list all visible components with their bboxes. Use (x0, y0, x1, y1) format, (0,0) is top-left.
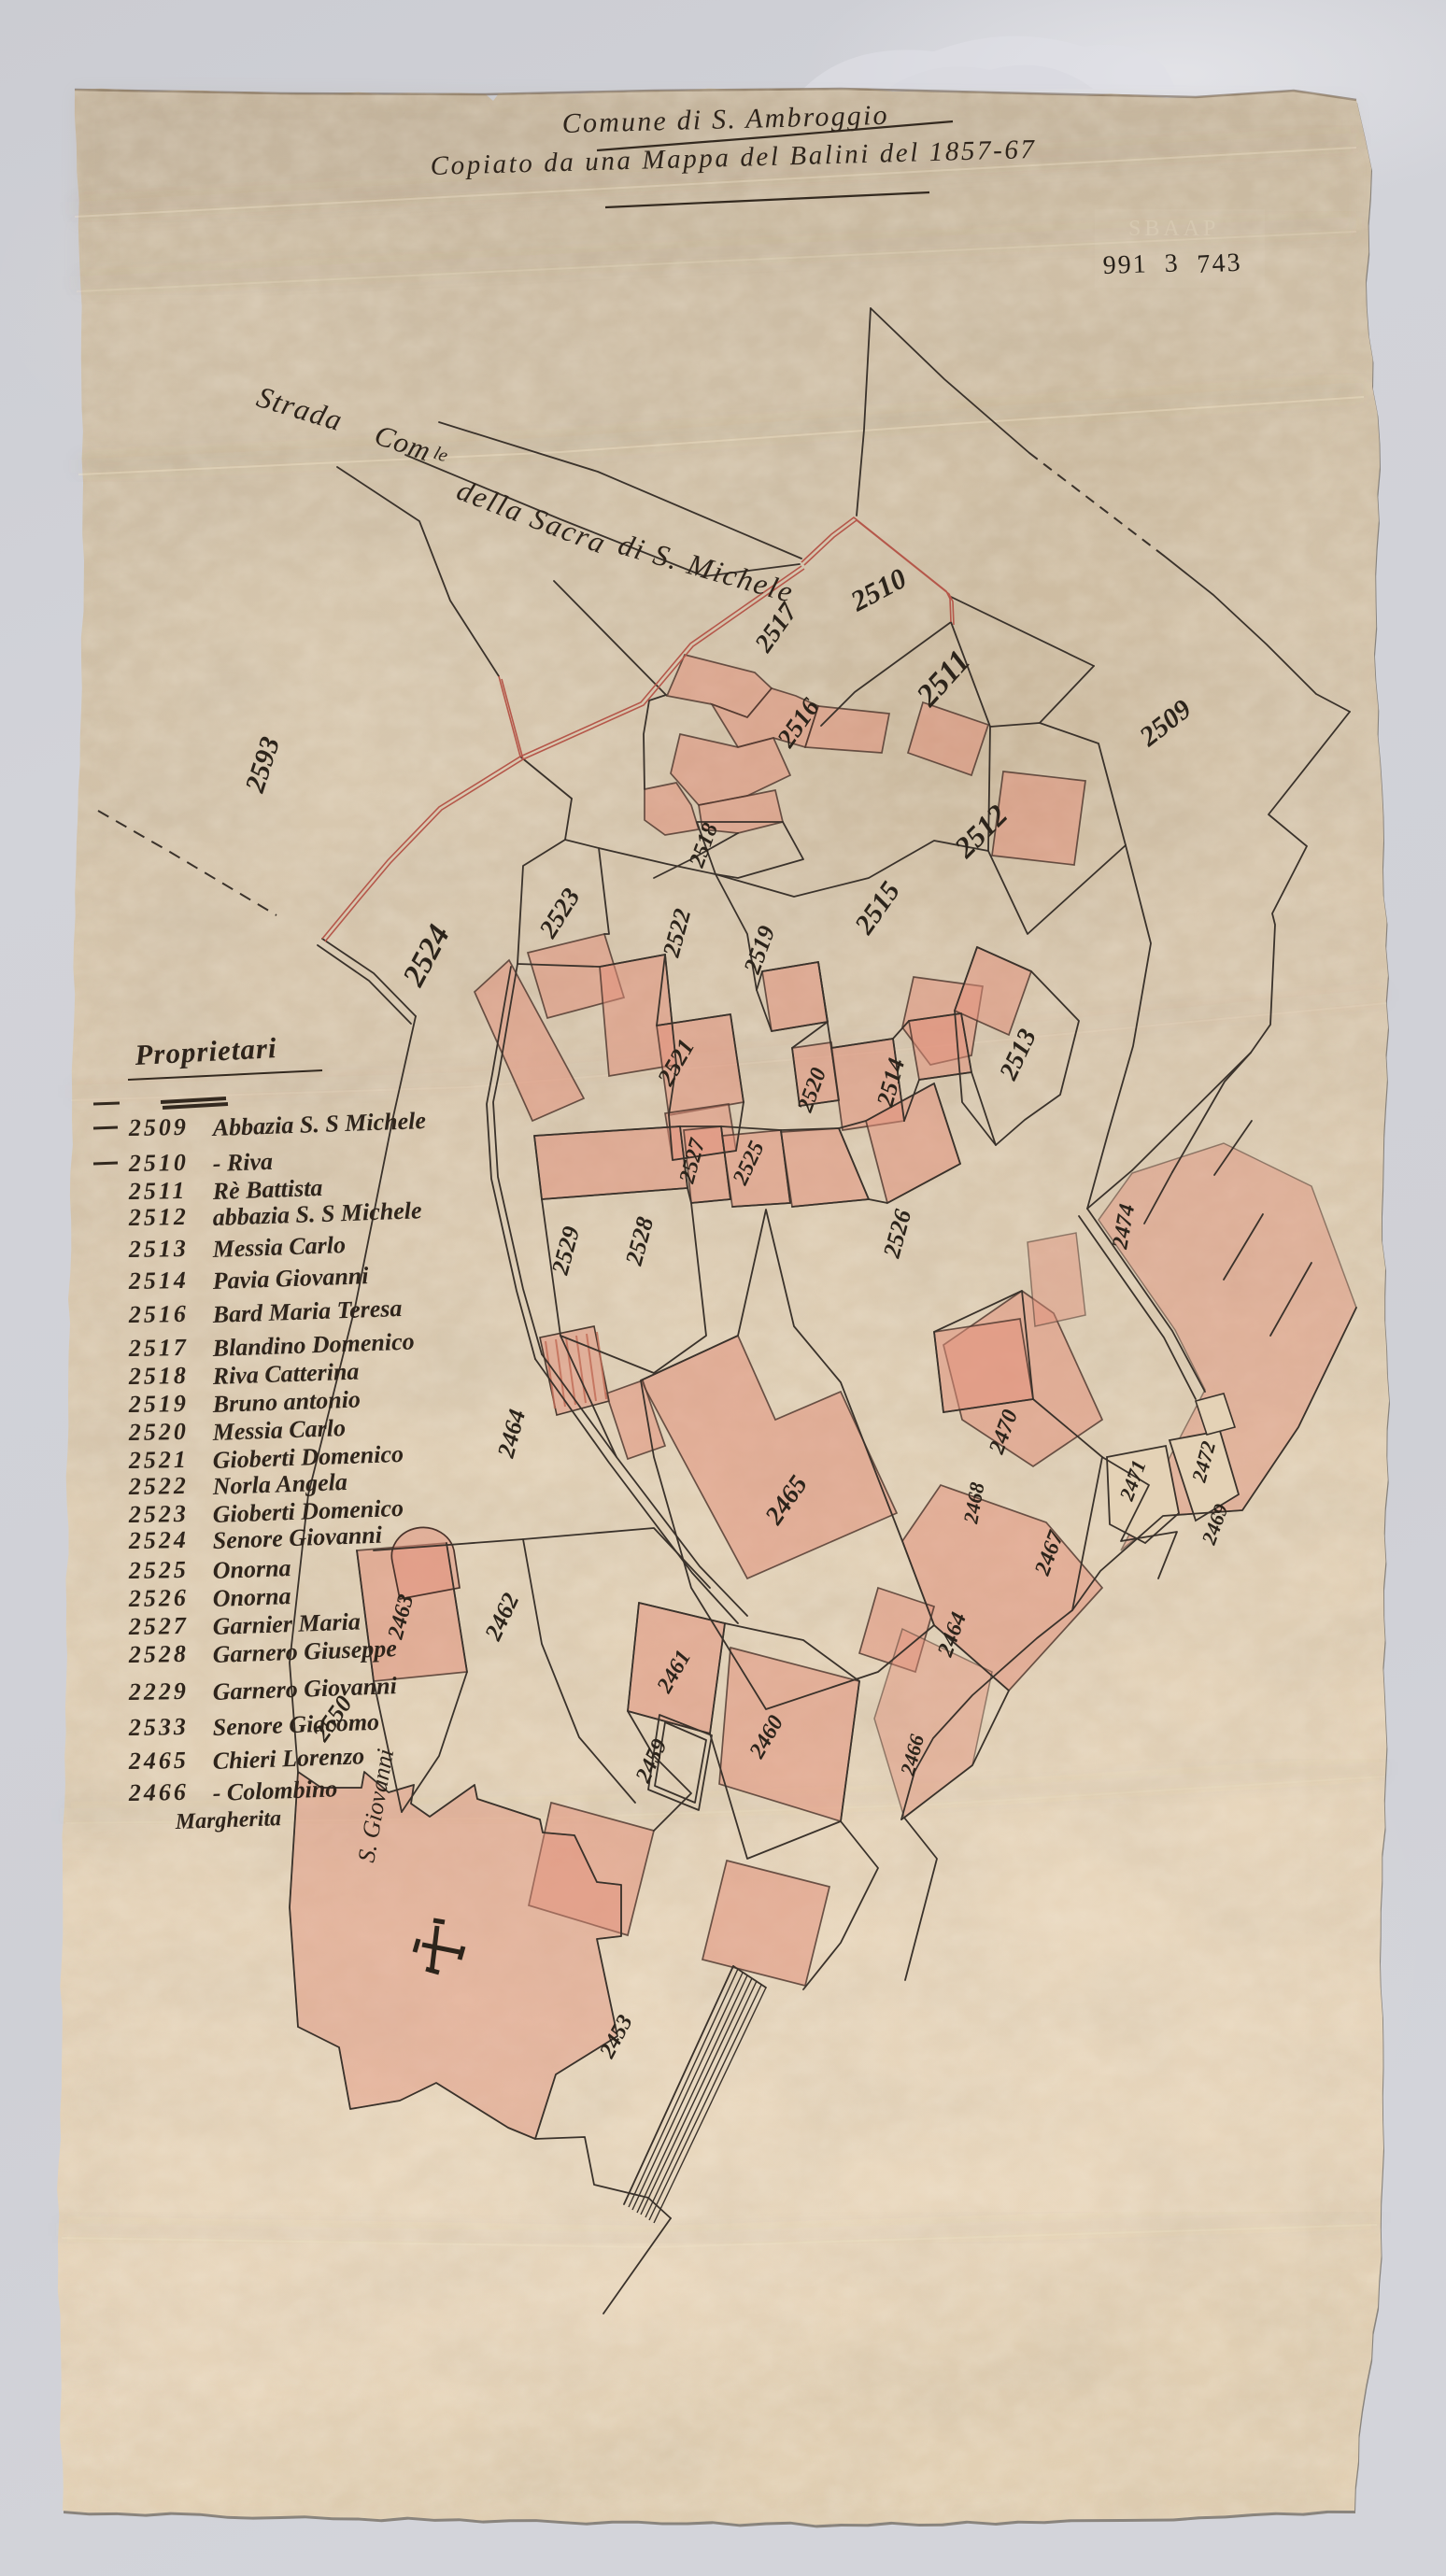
svg-text:743: 743 (1197, 248, 1243, 279)
svg-text:2523: 2523 (128, 1500, 189, 1528)
svg-text:Messia Carlo: Messia Carlo (211, 1414, 346, 1446)
svg-text:2520: 2520 (128, 1418, 189, 1446)
svg-text:2229: 2229 (128, 1677, 189, 1706)
svg-text:2525: 2525 (128, 1556, 189, 1584)
svg-text:- Riva: - Riva (212, 1148, 273, 1177)
svg-text:Riva Catterina: Riva Catterina (211, 1358, 360, 1390)
svg-text:Margherita: Margherita (174, 1806, 281, 1834)
svg-text:2518: 2518 (128, 1362, 189, 1390)
svg-text:2524: 2524 (128, 1526, 189, 1554)
svg-text:2511: 2511 (128, 1177, 188, 1205)
svg-text:2466: 2466 (128, 1778, 189, 1806)
svg-text:2528: 2528 (128, 1640, 189, 1668)
svg-text:Bruno antonio: Bruno antonio (211, 1385, 361, 1418)
svg-text:2527: 2527 (128, 1612, 189, 1640)
svg-text:2522: 2522 (128, 1472, 189, 1500)
svg-text:Pavia Giovanni: Pavia Giovanni (211, 1262, 370, 1295)
svg-text:2521: 2521 (128, 1446, 189, 1474)
svg-text:2465: 2465 (128, 1747, 189, 1775)
svg-text:2526: 2526 (128, 1584, 189, 1612)
svg-text:2514: 2514 (128, 1267, 189, 1295)
svg-text:2516: 2516 (128, 1300, 189, 1328)
svg-text:3: 3 (1164, 249, 1178, 278)
svg-text:Onorna: Onorna (212, 1582, 291, 1612)
svg-text:SBAAP: SBAAP (1128, 217, 1219, 241)
svg-text:Garnier Maria: Garnier Maria (212, 1607, 361, 1640)
svg-text:Messia Carlo: Messia Carlo (211, 1231, 346, 1263)
svg-text:Chieri Lorenzo: Chieri Lorenzo (212, 1742, 364, 1775)
svg-text:991: 991 (1102, 249, 1148, 280)
svg-text:2517: 2517 (128, 1334, 189, 1362)
svg-text:2510: 2510 (128, 1149, 189, 1177)
svg-text:Norla Angela: Norla Angela (211, 1468, 347, 1500)
svg-text:2512: 2512 (128, 1203, 189, 1231)
svg-text:2513: 2513 (128, 1235, 189, 1263)
svg-text:- Colombino: - Colombino (212, 1775, 338, 1806)
svg-text:Onorna: Onorna (212, 1554, 291, 1584)
svg-text:2509: 2509 (128, 1113, 189, 1141)
svg-text:2519: 2519 (128, 1390, 189, 1418)
svg-text:2533: 2533 (128, 1713, 189, 1741)
